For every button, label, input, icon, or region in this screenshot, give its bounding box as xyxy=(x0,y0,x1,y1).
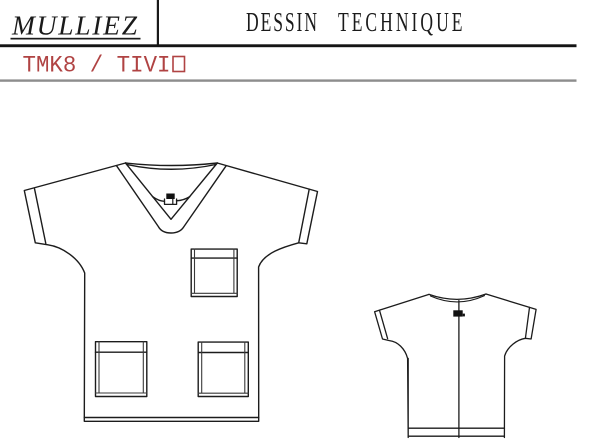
svg-text:MULLIEZ: MULLIEZ xyxy=(11,10,138,41)
svg-text:DESSIN: DESSIN xyxy=(246,7,317,37)
svg-text:TMK8 / TIVI: TMK8 / TIVI xyxy=(23,53,171,79)
svg-text:TECHNIQUE: TECHNIQUE xyxy=(338,7,462,37)
